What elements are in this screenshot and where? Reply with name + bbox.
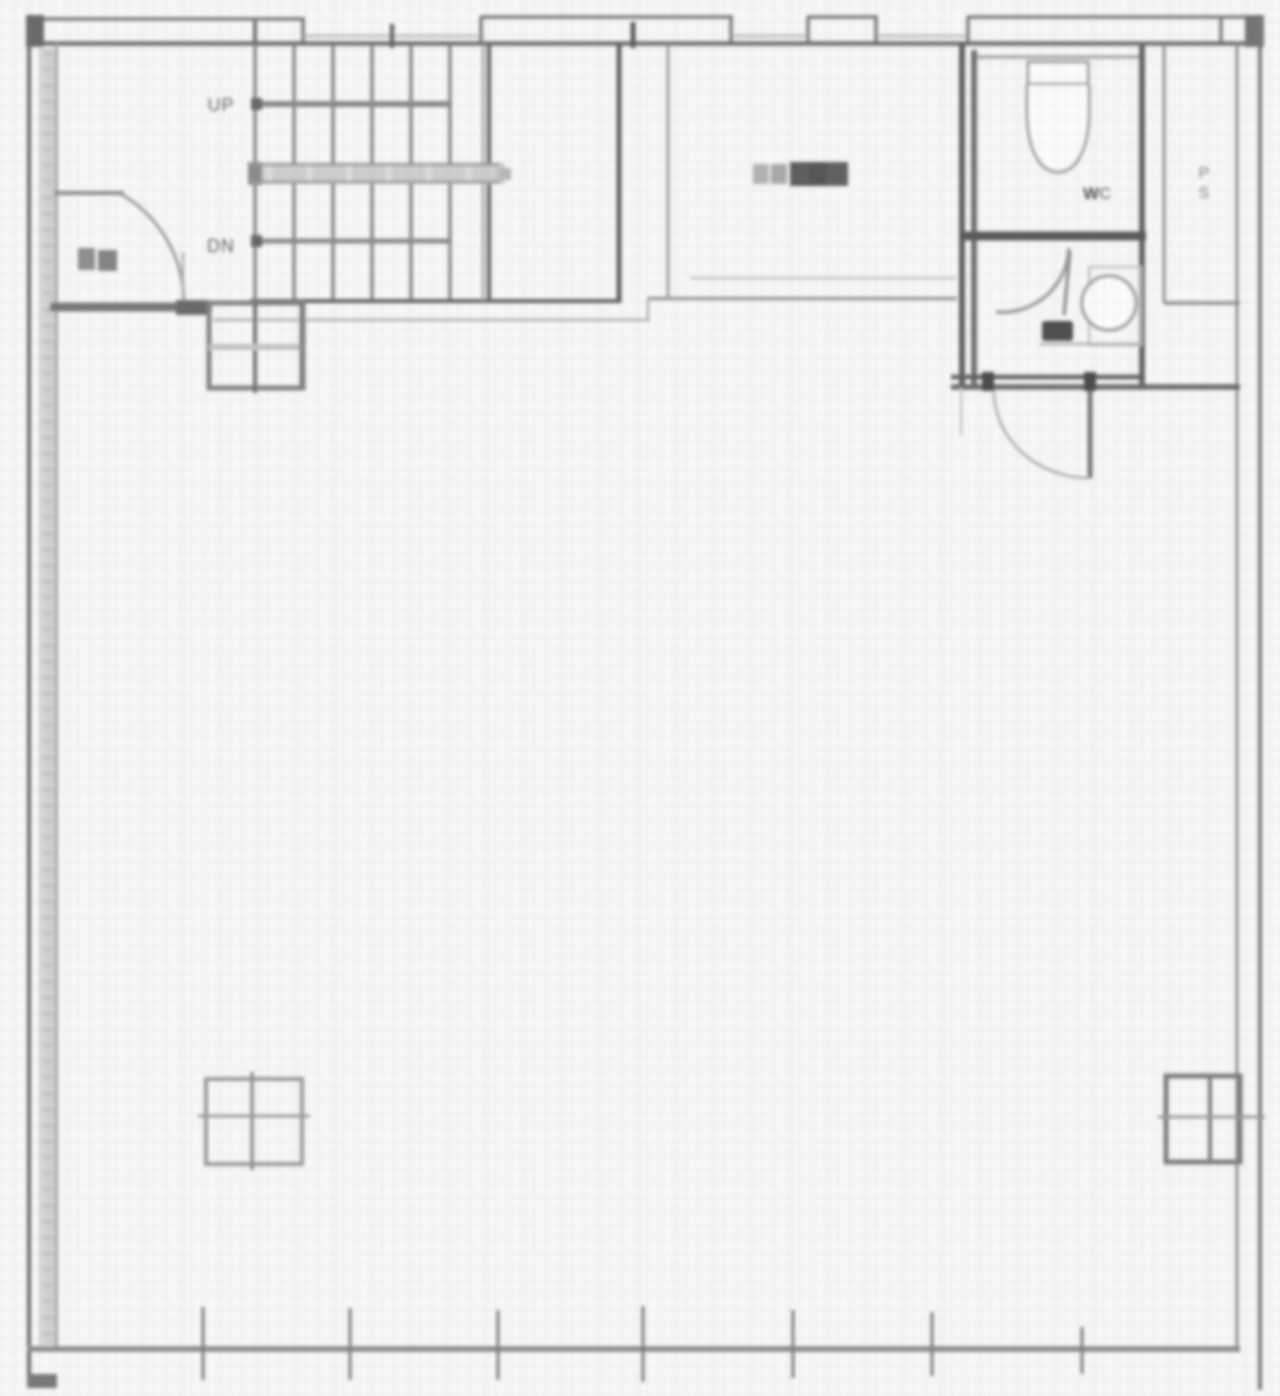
svg-text:UP: UP — [207, 95, 234, 115]
svg-text:WC: WC — [1083, 184, 1111, 203]
svg-text:S: S — [1199, 185, 1210, 202]
svg-text:P: P — [1199, 165, 1210, 182]
svg-text:DN: DN — [207, 236, 235, 256]
